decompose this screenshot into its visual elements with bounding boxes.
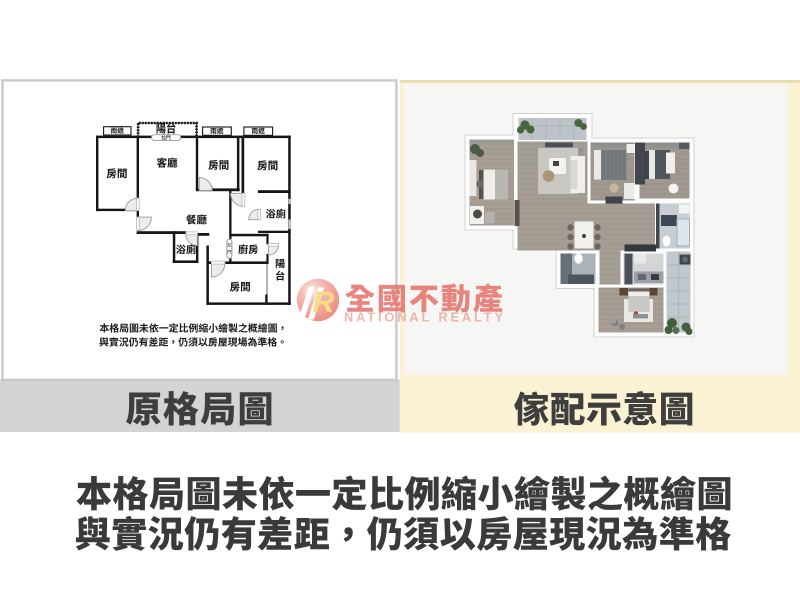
svg-text:R: R: [313, 286, 335, 319]
svg-text:NATIONAL REALTY: NATIONAL REALTY: [344, 310, 503, 325]
